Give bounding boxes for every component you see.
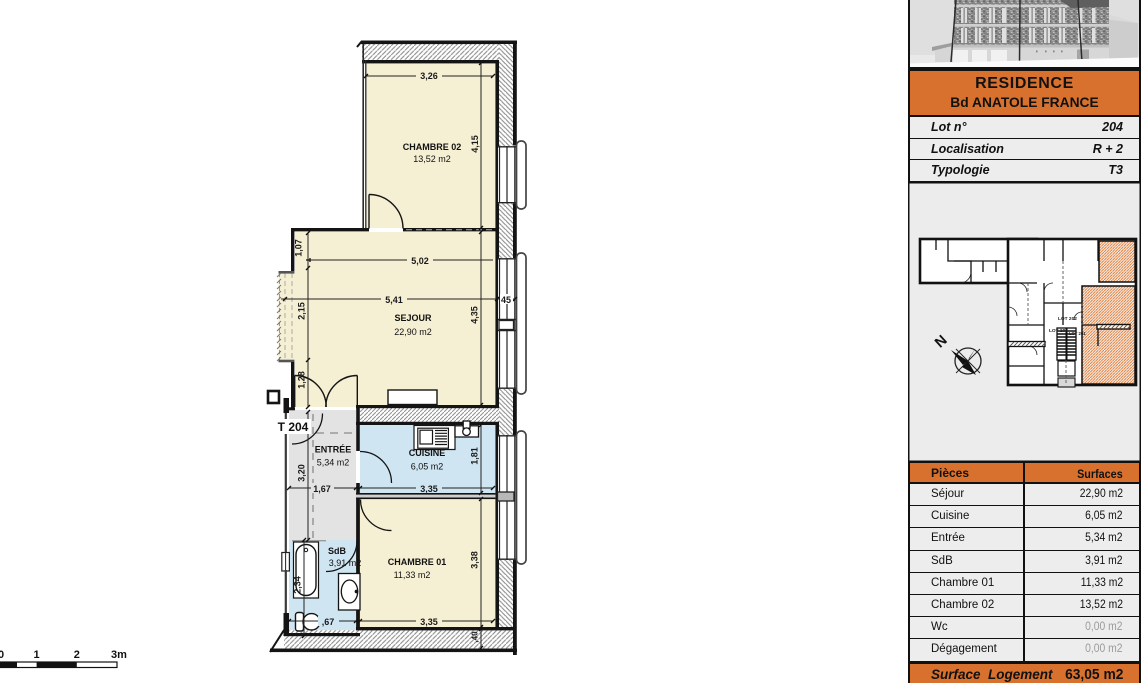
svg-text:6,05 m2: 6,05 m2 xyxy=(411,462,444,472)
svg-text:CUISINE: CUISINE xyxy=(409,448,446,458)
svg-text:2: 2 xyxy=(74,649,80,661)
svg-text:13,52 m2: 13,52 m2 xyxy=(413,154,451,164)
svg-text:5,41: 5,41 xyxy=(385,295,403,305)
svg-text:1,67: 1,67 xyxy=(313,484,331,494)
svg-text:1,28: 1,28 xyxy=(297,371,307,389)
svg-text:LOT 201: LOT 201 xyxy=(1069,331,1086,336)
svg-text:1,07: 1,07 xyxy=(294,239,304,257)
svg-text:3,20: 3,20 xyxy=(297,464,307,482)
svg-text:2,34: 2,34 xyxy=(293,576,303,594)
svg-text:11,33 m2: 11,33 m2 xyxy=(394,570,431,580)
svg-text:1,81: 1,81 xyxy=(470,447,480,465)
svg-text:1: 1 xyxy=(34,649,40,661)
svg-text:SdB: SdB xyxy=(328,546,347,556)
svg-text:4,35: 4,35 xyxy=(470,306,480,324)
svg-text:3,35: 3,35 xyxy=(420,617,438,627)
svg-text:LOT 203: LOT 203 xyxy=(1049,328,1068,334)
svg-text:ENTRÉE: ENTRÉE xyxy=(315,445,352,455)
svg-text:CHAMBRE 01: CHAMBRE 01 xyxy=(388,557,447,567)
svg-text:2,15: 2,15 xyxy=(297,302,307,320)
svg-text:CHAMBRE 02: CHAMBRE 02 xyxy=(403,142,462,152)
svg-text:T 204: T 204 xyxy=(278,420,309,434)
svg-text:LOT 202: LOT 202 xyxy=(1058,316,1077,322)
svg-text:,40: ,40 xyxy=(471,631,480,643)
svg-text:4,15: 4,15 xyxy=(470,135,480,153)
svg-text:22,90 m2: 22,90 m2 xyxy=(394,327,432,337)
svg-text:3,35: 3,35 xyxy=(420,484,438,494)
svg-text:45: 45 xyxy=(501,295,511,305)
svg-text:3,91 m2: 3,91 m2 xyxy=(329,558,362,568)
svg-text:5,34 m2: 5,34 m2 xyxy=(317,458,350,468)
svg-text:5,02: 5,02 xyxy=(411,256,429,266)
svg-text:,67: ,67 xyxy=(322,617,335,627)
svg-text:3,38: 3,38 xyxy=(470,551,480,569)
svg-text:0: 0 xyxy=(0,649,4,661)
svg-text:3m: 3m xyxy=(111,649,127,661)
svg-text:SEJOUR: SEJOUR xyxy=(394,313,432,323)
svg-text:3,26: 3,26 xyxy=(420,71,438,81)
